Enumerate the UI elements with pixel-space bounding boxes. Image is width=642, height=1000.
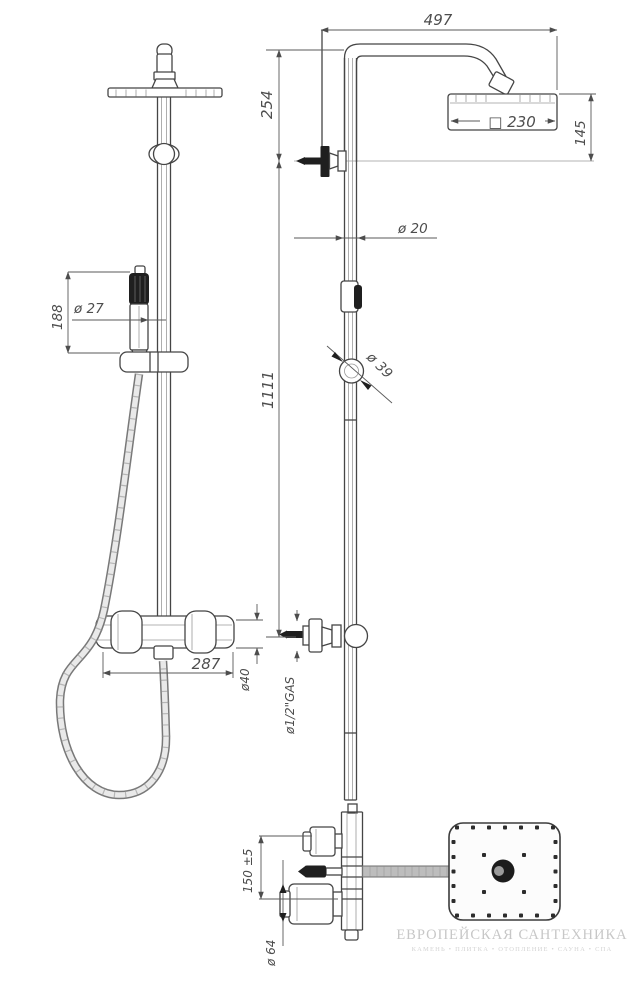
dim-head-depth: 145	[573, 120, 589, 146]
dim-head-size: □ 230	[488, 113, 536, 131]
dim-handle-diameter-group: ø 64	[264, 860, 287, 967]
hand-shower	[129, 266, 149, 359]
dim-head-offset: 254	[258, 90, 276, 119]
dim-column-height: 1111	[259, 371, 277, 409]
watermark-subtitle: КАМЕНЬ • ПЛИТКА • ОТОПЛЕНИЕ • САУНА • СП…	[412, 946, 613, 953]
dim-pipe-diameter-group: ø 20	[294, 221, 437, 238]
dim-mixer-body-group: ø40	[236, 604, 263, 692]
mixer-knob-right	[185, 611, 216, 653]
dim-handshower-length: 188	[50, 304, 66, 330]
wall-ring-front	[149, 144, 179, 165]
shower-head-side: □ 230	[448, 94, 557, 131]
shower-head-top-view	[449, 823, 560, 920]
dim-head-depth-group: 145	[559, 94, 596, 161]
mixer-body-bottom	[342, 804, 363, 940]
dim-handshower-diameter: ø 27	[73, 301, 104, 317]
dim-inlet-thread: ø1/2"GAS	[283, 676, 297, 735]
dim-mixer-body-diameter: ø40	[238, 668, 252, 692]
mixer-front	[96, 611, 234, 659]
dim-inlet-spacing: 150 ±5	[241, 849, 255, 893]
shower-head-front	[108, 44, 222, 97]
dim-mixer-width: 287	[192, 655, 221, 673]
diverter-handle	[298, 866, 342, 878]
mixer-knob-left	[111, 611, 142, 653]
front-view: 188 ø 27 287 ø40	[50, 44, 263, 795]
dim-inlet-thread-group: ø1/2"GAS	[283, 610, 297, 735]
hand-shower-holder	[120, 352, 188, 372]
inlet-valve-side	[279, 619, 368, 652]
holder-side	[341, 281, 362, 312]
ball-joint	[492, 860, 515, 883]
slider-ring-side	[340, 359, 364, 383]
handle-bottom	[280, 884, 342, 924]
dim-column-height-group: 1111	[259, 161, 296, 637]
dim-head-offset-group: 254	[258, 50, 344, 161]
dim-top-width: 497	[424, 11, 453, 29]
shower-system-dimension-drawing: 188 ø 27 287 ø40	[0, 0, 642, 1000]
dim-pipe-diameter: ø 20	[397, 221, 428, 237]
watermark-title: ЕВРОПЕЙСКАЯ САНТЕХНИКА	[396, 926, 627, 943]
wall-bracket-side	[296, 146, 346, 177]
handle-top	[303, 827, 342, 856]
dim-handle-diameter: ø 64	[264, 940, 278, 967]
shower-hose	[60, 374, 166, 795]
technical-drawing-page: 188 ø 27 287 ø40	[0, 0, 642, 1000]
dim-slider-diameter: ø 39	[362, 349, 395, 382]
side-view: □ 230	[258, 11, 596, 800]
watermark: ЕВРОПЕЙСКАЯ САНТЕХНИКА КАМЕНЬ • ПЛИТКА •…	[396, 926, 627, 953]
